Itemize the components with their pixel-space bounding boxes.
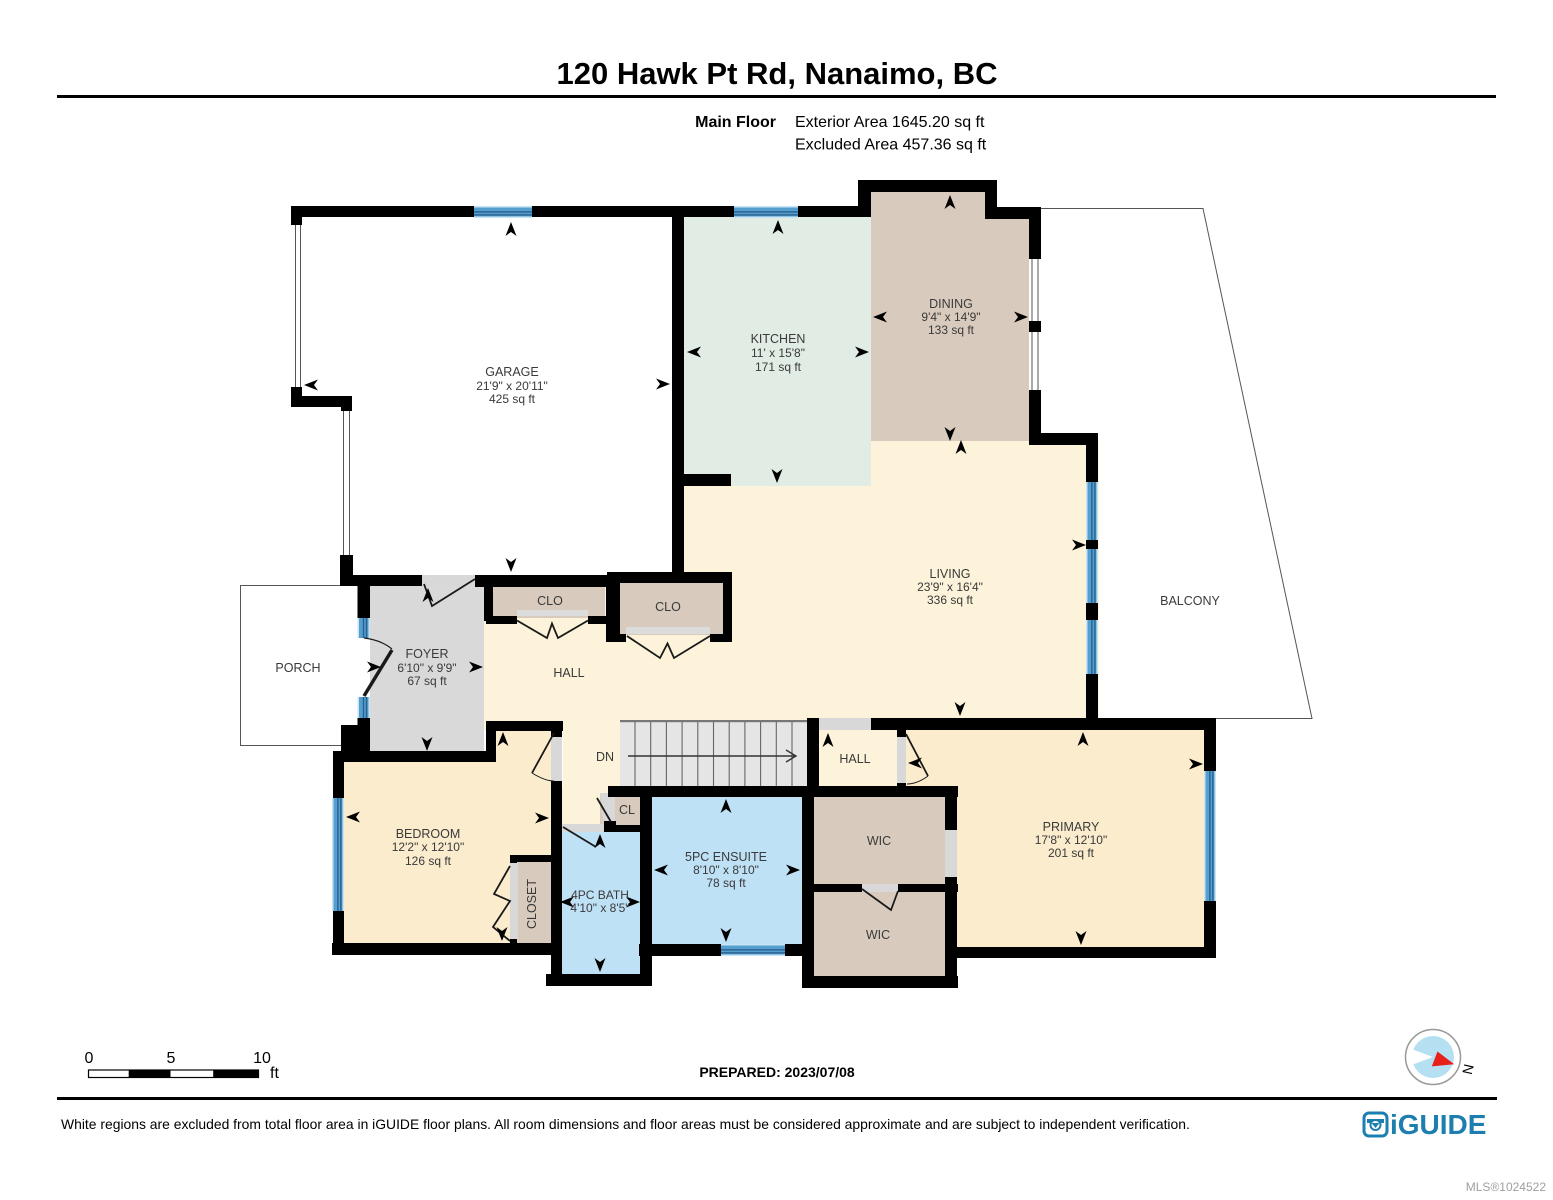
- svg-text:White regions are excluded fro: White regions are excluded from total fl…: [61, 1116, 1190, 1132]
- svg-text:PRIMARY: PRIMARY: [1043, 820, 1100, 834]
- svg-text:5: 5: [167, 1050, 176, 1067]
- svg-text:336 sq ft: 336 sq ft: [927, 593, 974, 607]
- svg-text:126 sq ft: 126 sq ft: [405, 854, 452, 868]
- svg-text:PORCH: PORCH: [275, 661, 320, 675]
- svg-text:4PC BATH: 4PC BATH: [571, 888, 629, 902]
- svg-text:133 sq ft: 133 sq ft: [928, 323, 975, 337]
- svg-text:201 sq ft: 201 sq ft: [1048, 846, 1095, 860]
- svg-text:HALL: HALL: [553, 666, 584, 680]
- svg-text:CLO: CLO: [655, 600, 681, 614]
- svg-text:120 Hawk Pt Rd, Nanaimo, BC: 120 Hawk Pt Rd, Nanaimo, BC: [556, 56, 997, 91]
- svg-text:DN: DN: [596, 750, 614, 764]
- svg-text:5PC ENSUITE: 5PC ENSUITE: [685, 850, 767, 864]
- svg-text:21'9" x 20'11": 21'9" x 20'11": [476, 379, 548, 393]
- svg-text:4'10" x 8'5": 4'10" x 8'5": [570, 901, 629, 915]
- svg-text:BALCONY: BALCONY: [1160, 594, 1220, 608]
- svg-text:9'4" x 14'9": 9'4" x 14'9": [921, 310, 980, 324]
- svg-text:0: 0: [85, 1050, 94, 1067]
- svg-text:CL: CL: [619, 803, 635, 817]
- svg-text:WIC: WIC: [867, 834, 891, 848]
- svg-text:11' x 15'8": 11' x 15'8": [751, 346, 805, 360]
- svg-text:8'10" x 8'10": 8'10" x 8'10": [693, 863, 759, 877]
- svg-text:67 sq ft: 67 sq ft: [407, 674, 447, 688]
- svg-text:HALL: HALL: [839, 752, 870, 766]
- svg-text:6'10" x 9'9": 6'10" x 9'9": [397, 661, 456, 675]
- svg-text:ft: ft: [270, 1065, 279, 1082]
- svg-text:Main Floor: Main Floor: [695, 114, 776, 131]
- svg-text:78 sq ft: 78 sq ft: [706, 876, 746, 890]
- svg-text:171 sq ft: 171 sq ft: [755, 360, 802, 374]
- svg-text:17'8" x 12'10": 17'8" x 12'10": [1035, 833, 1108, 847]
- svg-text:12'2" x 12'10": 12'2" x 12'10": [392, 840, 465, 854]
- svg-text:MLS®1024522: MLS®1024522: [1466, 1180, 1547, 1194]
- svg-text:BEDROOM: BEDROOM: [396, 827, 461, 841]
- svg-text:Exterior Area 1645.20 sq ft: Exterior Area 1645.20 sq ft: [795, 114, 985, 131]
- svg-text:23'9" x 16'4": 23'9" x 16'4": [917, 580, 983, 594]
- svg-text:WIC: WIC: [866, 928, 890, 942]
- svg-text:DINING: DINING: [929, 297, 973, 311]
- svg-text:KITCHEN: KITCHEN: [751, 332, 806, 346]
- svg-text:10: 10: [253, 1050, 271, 1067]
- svg-text:Excluded Area 457.36 sq ft: Excluded Area 457.36 sq ft: [795, 137, 987, 154]
- svg-text:425 sq ft: 425 sq ft: [489, 392, 536, 406]
- svg-text:GARAGE: GARAGE: [485, 365, 539, 379]
- svg-text:CLO: CLO: [537, 594, 563, 608]
- svg-text:CLOSET: CLOSET: [525, 879, 539, 929]
- svg-text:PREPARED: 2023/07/08: PREPARED: 2023/07/08: [699, 1064, 855, 1080]
- svg-text:FOYER: FOYER: [405, 647, 448, 661]
- svg-text:iGUIDE: iGUIDE: [1390, 1109, 1486, 1140]
- svg-text:LIVING: LIVING: [930, 567, 971, 581]
